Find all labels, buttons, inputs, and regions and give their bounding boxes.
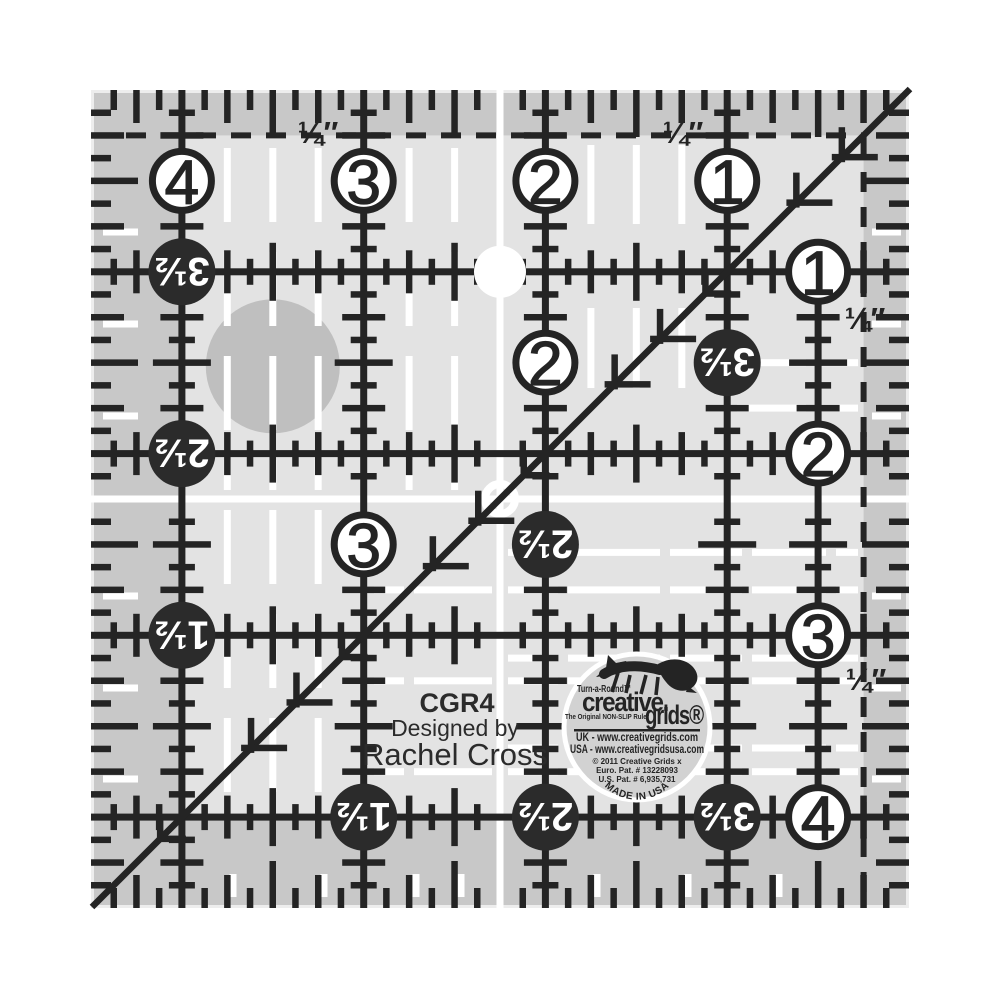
svg-text:2: 2 (528, 330, 562, 399)
svg-text:The Original NON-SLIP Ruler: The Original NON-SLIP Ruler (565, 712, 649, 721)
svg-text:4: 4 (801, 785, 835, 854)
svg-text:3½: 3½ (699, 340, 755, 384)
svg-text:¼″: ¼″ (663, 115, 704, 150)
svg-text:UK - www.creativegrids.com: UK - www.creativegrids.com (576, 732, 698, 744)
svg-text:3: 3 (801, 603, 835, 672)
svg-text:3½: 3½ (699, 794, 755, 838)
svg-text:3: 3 (346, 512, 380, 581)
svg-text:2: 2 (801, 421, 835, 490)
svg-text:1: 1 (710, 148, 744, 217)
svg-text:1: 1 (801, 239, 835, 308)
svg-text:3½: 3½ (154, 249, 210, 293)
svg-text:¼″: ¼″ (845, 301, 886, 336)
svg-text:2: 2 (528, 148, 562, 217)
svg-text:Rachel Cross: Rachel Cross (362, 737, 548, 772)
svg-text:4: 4 (165, 148, 199, 217)
svg-text:Euro. Pat. # 13228093: Euro. Pat. # 13228093 (596, 766, 678, 775)
svg-text:1½: 1½ (336, 794, 392, 838)
svg-text:3: 3 (346, 148, 380, 217)
svg-text:USA - www.creativegridsusa.com: USA - www.creativegridsusa.com (570, 744, 704, 756)
svg-text:2½: 2½ (518, 794, 574, 838)
svg-text:grids®: grids® (645, 700, 704, 730)
svg-text:¼″: ¼″ (846, 662, 887, 697)
svg-text:1½: 1½ (154, 612, 210, 656)
svg-text:© 2011 Creative Grids x: © 2011 Creative Grids x (592, 757, 682, 766)
svg-text:2½: 2½ (518, 521, 574, 565)
svg-text:¼″: ¼″ (298, 115, 339, 150)
svg-text:CGR4: CGR4 (419, 688, 494, 718)
svg-text:2½: 2½ (154, 431, 210, 475)
